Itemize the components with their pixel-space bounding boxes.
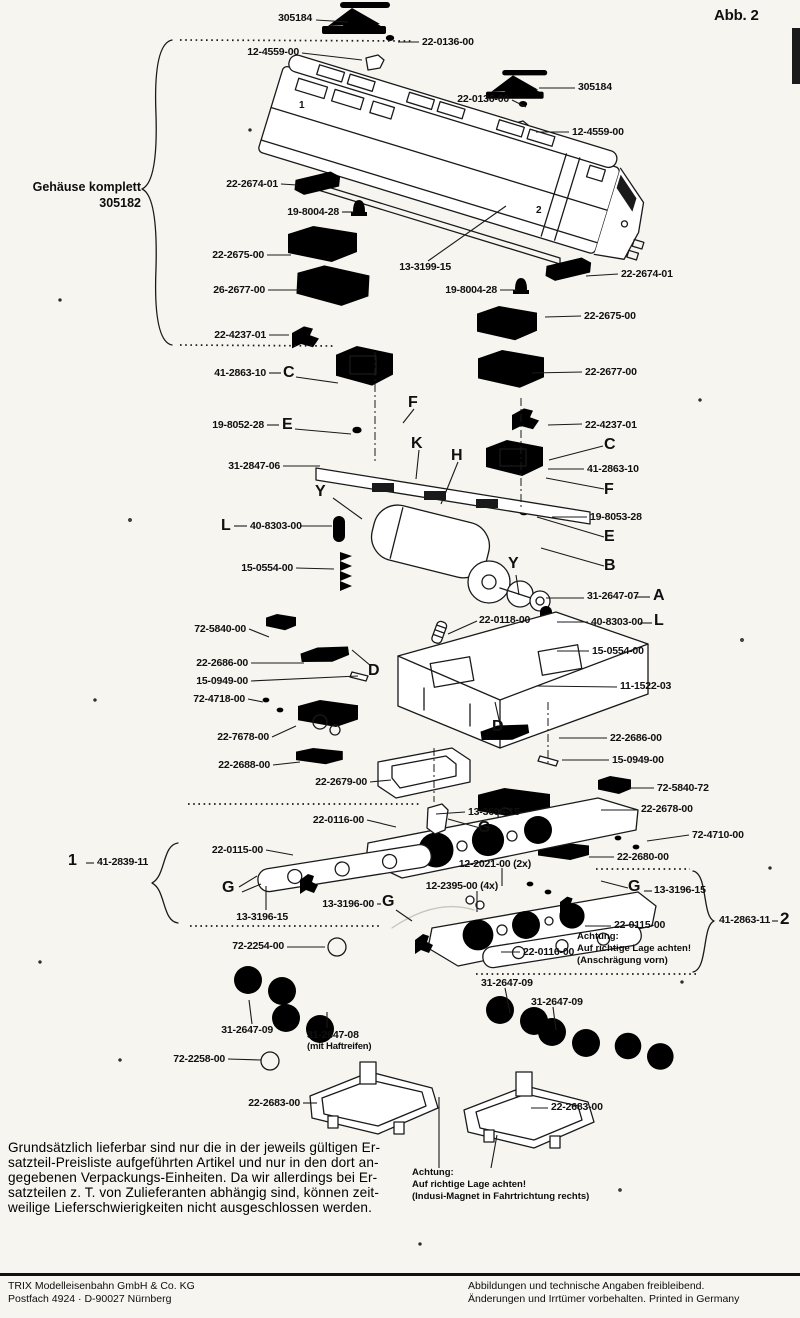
part-number-label: 22-2674-01 — [621, 269, 673, 280]
part-number-label: 19-8053-28 — [590, 512, 642, 523]
text-layer: TRIX Modelleisenbahn GmbH & Co. KG Postf… — [0, 0, 800, 1318]
part-number-label: 22-2688-00 — [218, 760, 270, 771]
part-number-label: 305184 — [578, 82, 612, 93]
part-number-label: 12-4559-00 — [572, 127, 624, 138]
callout-letter: A — [653, 588, 665, 604]
part-number-label: 72-4718-00 — [193, 694, 245, 705]
part-number-label: 41-2863-10 — [587, 464, 639, 475]
note-line: Gehäuse komplett — [33, 180, 141, 196]
paragraph-line: satzteil-Preisliste aufgeführten Artikel… — [8, 1155, 380, 1170]
part-number-label: 72-5840-72 — [657, 783, 709, 794]
part-number-label: 22-0116-00 — [313, 815, 364, 826]
part-number-label: 15-0554-00 — [592, 646, 644, 657]
part-number-label: 22-0116-00 — [523, 947, 574, 958]
footer-company: TRIX Modelleisenbahn GmbH & Co. KG — [8, 1280, 195, 1293]
callout-letter: G — [628, 879, 640, 895]
part-number-label: 13-3196-15 — [654, 885, 706, 896]
part-number-label: 12-2021-00 (2x) — [459, 859, 531, 870]
callout-letter: 1 — [68, 853, 77, 869]
part-number-label: 22-2686-00 — [196, 658, 248, 669]
paragraph-line: gegebenen Verpackungs-Einheiten. Da wir … — [8, 1170, 380, 1185]
part-number-label: 22-2678-00 — [641, 804, 693, 815]
part-number-label: 72-2258-00 — [173, 1054, 225, 1065]
paragraph-line: satzteilen z. T. von Zulieferanten abhän… — [8, 1185, 380, 1200]
note-line: 305182 — [33, 196, 141, 212]
part-number-label: (mit Haftreifen) — [307, 1042, 371, 1052]
note-line: (Anschrägung vorn) — [577, 955, 691, 967]
note-line: (Indusi-Magnet in Fahrtrichtung rechts) — [412, 1191, 589, 1203]
availability-paragraph: Grundsätzlich lieferbar sind nur die in … — [8, 1140, 380, 1215]
callout-letter: H — [451, 448, 463, 464]
callout-letter: B — [604, 558, 616, 574]
callout-letter: K — [411, 436, 423, 452]
part-number-label: 305184 — [278, 13, 312, 24]
diagram-note: Achtung:Auf richtige Lage achten!(Indusi… — [412, 1167, 589, 1203]
part-number-label: 13-3199-15 — [399, 262, 451, 273]
part-number-label: 12-4559-00 — [247, 47, 299, 58]
footer-disclaimer-line1: Abbildungen und technische Angaben freib… — [468, 1280, 739, 1293]
part-number-label: 13-3696-15 — [468, 807, 520, 818]
callout-letter: 1 — [299, 101, 305, 111]
part-number-label: 72-4710-00 — [692, 830, 744, 841]
footer-disclaimer: Abbildungen und technische Angaben freib… — [468, 1280, 739, 1306]
part-number-label: 12-2395-00 (4x) — [426, 881, 498, 892]
part-number-label: 22-4237-01 — [585, 420, 637, 431]
part-number-label: 19-8052-28 — [212, 420, 264, 431]
callout-letter: G — [478, 820, 490, 836]
part-number-label: 22-2677-00 — [585, 367, 637, 378]
part-number-label: 22-0118-00 — [479, 615, 530, 626]
paragraph-line: Grundsätzlich lieferbar sind nur die in … — [8, 1140, 380, 1155]
callout-letter: G — [222, 880, 234, 896]
callout-letter: D — [368, 663, 380, 679]
part-number-label: 22-4237-01 — [214, 330, 266, 341]
callout-letter: Y — [508, 556, 519, 572]
footer-publisher: TRIX Modelleisenbahn GmbH & Co. KG Postf… — [8, 1280, 195, 1306]
part-number-label: 15-0949-00 — [612, 755, 664, 766]
part-number-label: 13-3196-00 — [322, 899, 374, 910]
callout-letter: L — [654, 613, 664, 629]
diagram-note: Achtung:Auf richtige Lage achten!(Anschr… — [577, 931, 691, 967]
callout-letter: L — [221, 518, 231, 534]
part-number-label: 19-8004-28 — [445, 285, 497, 296]
callout-letter: F — [408, 395, 418, 411]
part-number-label: 22-2683-00 — [248, 1098, 300, 1109]
callout-letter: Y — [315, 484, 326, 500]
part-number-label: 41-2839-11 — [97, 857, 148, 868]
diagram-note: Gehäuse komplett305182 — [33, 180, 141, 211]
part-number-label: 22-0136-00 — [457, 94, 509, 105]
callout-letter: D — [492, 719, 504, 735]
parts-diagram-page: { "figure_label": "Abb. 2", "group_note"… — [0, 0, 800, 1318]
part-number-label: 22-0115-00 — [614, 920, 665, 931]
part-number-label: 22-2679-00 — [315, 777, 367, 788]
part-number-label: Abb. 2 — [714, 8, 759, 23]
part-number-label: 11-1522-03 — [620, 681, 671, 692]
part-number-label: 41-2863-10 — [214, 368, 266, 379]
part-number-label: 22-2686-00 — [610, 733, 662, 744]
part-number-label: 31-2647-08 — [307, 1030, 359, 1041]
part-number-label: 22-0136-00 — [422, 37, 474, 48]
part-number-label: 40-8303-00 — [250, 521, 302, 532]
part-number-label: 31-2647-09 — [531, 997, 583, 1008]
part-number-label: 22-2683-00 — [551, 1102, 603, 1113]
callout-letter: F — [604, 482, 614, 498]
part-number-label: 22-2674-01 — [226, 179, 278, 190]
note-line: Auf richtige Lage achten! — [577, 943, 691, 955]
callout-letter: E — [282, 417, 293, 433]
note-line: Achtung: — [577, 931, 691, 943]
part-number-label: 15-0554-00 — [241, 563, 293, 574]
part-number-label: 40-8303-00 — [591, 617, 643, 628]
callout-letter: 2 — [780, 910, 789, 927]
callout-letter: C — [604, 437, 616, 453]
part-number-label: 41-2863-11 — [719, 915, 770, 926]
part-number-label: 72-2254-00 — [232, 941, 284, 952]
part-number-label: 31-2647-09 — [481, 978, 533, 989]
part-number-label: 22-7678-00 — [217, 732, 269, 743]
callout-letter: 2 — [536, 206, 542, 216]
footer-address: Postfach 4924 · D-90027 Nürnberg — [8, 1293, 195, 1306]
part-number-label: 22-0115-00 — [212, 845, 263, 856]
part-number-label: 22-2675-00 — [584, 311, 636, 322]
part-number-label: 22-2675-00 — [212, 250, 264, 261]
callout-letter: E — [604, 529, 615, 545]
part-number-label: 13-3196-15 — [236, 912, 288, 923]
part-number-label: 19-8004-28 — [287, 207, 339, 218]
part-number-label: 31-2647-07 — [587, 591, 639, 602]
note-line: Auf richtige Lage achten! — [412, 1179, 589, 1191]
paragraph-line: weilige Lieferschwierigkeiten nicht ausg… — [8, 1200, 380, 1215]
part-number-label: 31-2847-06 — [228, 461, 280, 472]
callout-letter: G — [382, 894, 394, 910]
footer-disclaimer-line2: Änderungen und Irrtümer vorbehalten. Pri… — [468, 1293, 739, 1306]
callout-letter: C — [283, 365, 295, 381]
note-line: Achtung: — [412, 1167, 589, 1179]
part-number-label: 15-0949-00 — [196, 676, 248, 687]
part-number-label: 26-2677-00 — [213, 285, 265, 296]
part-number-label: 72-5840-00 — [194, 624, 246, 635]
footer-rule — [0, 1273, 800, 1276]
part-number-label: 22-2680-00 — [617, 852, 669, 863]
part-number-label: 31-2647-09 — [221, 1025, 273, 1036]
